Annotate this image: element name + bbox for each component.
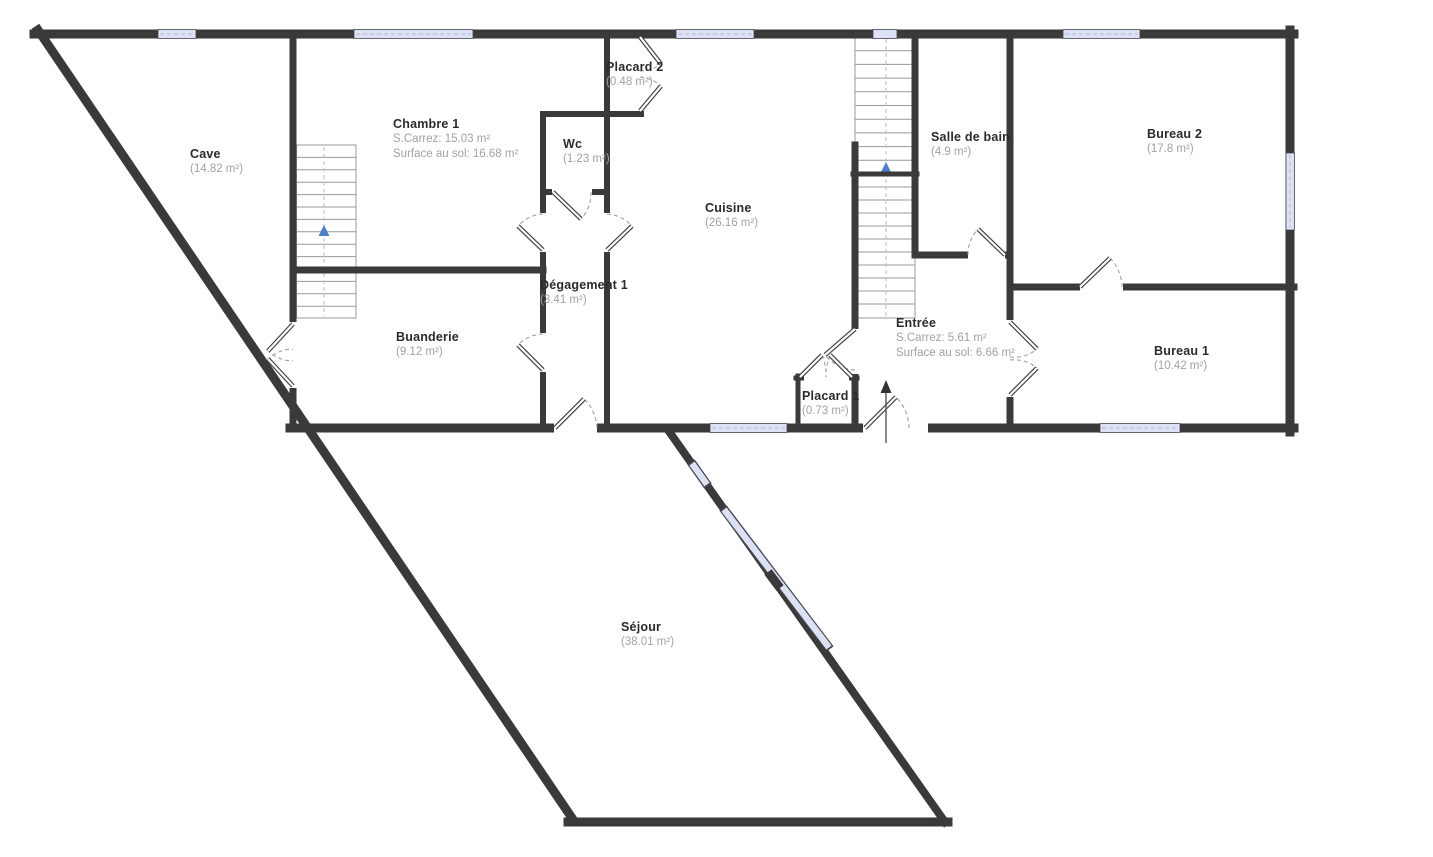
stairs-right	[855, 37, 915, 318]
window-stairs-top	[873, 30, 897, 39]
wall-sejour-diagonal-right	[668, 430, 945, 822]
room-name: Séjour	[621, 620, 674, 635]
room-area: (9.12 m²)	[396, 345, 459, 360]
room-name: Wc	[563, 137, 610, 152]
room-area: (17.8 m²)	[1147, 142, 1202, 157]
room-name: Cuisine	[705, 201, 758, 216]
room-area-sol: Surface au sol: 16.68 m²	[393, 147, 518, 162]
room-name: Placard 2	[606, 60, 663, 75]
room-label-chambre-1: Chambre 1 S.Carrez: 15.03 m² Surface au …	[393, 117, 518, 162]
stairs-left-up-arrow	[319, 225, 330, 236]
room-label-wc: Wc (1.23 m²)	[563, 137, 610, 167]
room-area: (26.16 m²)	[705, 216, 758, 231]
room-name: Dégagement 1	[540, 278, 628, 293]
room-label-salle-de-bain: Salle de bain (4.9 m²)	[931, 130, 1010, 160]
room-label-degagement-1: Dégagement 1 (3.41 m²)	[540, 278, 628, 308]
room-label-placard-2: Placard 2 (0.48 m²)	[606, 60, 663, 90]
room-label-entree: Entrée S.Carrez: 5.61 m² Surface au sol:…	[896, 316, 1015, 361]
room-area: (14.82 m²)	[190, 162, 243, 177]
room-area: (0.48 m²)	[606, 75, 663, 90]
room-name: Cave	[190, 147, 243, 162]
floor-plan: Cave (14.82 m²) Chambre 1 S.Carrez: 15.0…	[0, 0, 1433, 857]
room-name: Buanderie	[396, 330, 459, 345]
room-label-bureau-1: Bureau 1 (10.42 m²)	[1154, 344, 1209, 374]
entrance-arrow-head	[881, 380, 892, 393]
room-label-bureau-2: Bureau 2 (17.8 m²)	[1147, 127, 1202, 157]
door-arc-placard1-1	[822, 355, 826, 377]
room-area: (38.01 m²)	[621, 635, 674, 650]
room-label-sejour: Séjour (38.01 m²)	[621, 620, 674, 650]
room-name: Entrée	[896, 316, 1015, 331]
doors	[267, 37, 1122, 428]
room-label-placard-1: Placard 1 (0.73 m²)	[802, 389, 859, 419]
room-name: Bureau 2	[1147, 127, 1202, 142]
room-name: Salle de bain	[931, 130, 1010, 145]
room-label-cave: Cave (14.82 m²)	[190, 147, 243, 177]
room-area-carrez: S.Carrez: 5.61 m²	[896, 331, 1015, 346]
floor-plan-drawing	[0, 0, 1433, 857]
room-area: (0.73 m²)	[802, 404, 859, 419]
stairs-left	[297, 145, 357, 318]
room-name: Bureau 1	[1154, 344, 1209, 359]
room-area: (10.42 m²)	[1154, 359, 1209, 374]
room-area: (4.9 m²)	[931, 145, 1010, 160]
windows	[158, 30, 1295, 650]
stairs-right-up-arrow	[881, 162, 892, 173]
room-label-cuisine: Cuisine (26.16 m²)	[705, 201, 758, 231]
room-name: Chambre 1	[393, 117, 518, 132]
room-name: Placard 1	[802, 389, 859, 404]
room-area: (1.23 m²)	[563, 152, 610, 167]
room-label-buanderie: Buanderie (9.12 m²)	[396, 330, 459, 360]
room-area-carrez: S.Carrez: 15.03 m²	[393, 132, 518, 147]
room-area-sol: Surface au sol: 6.66 m²	[896, 346, 1015, 361]
room-area: (3.41 m²)	[540, 293, 628, 308]
